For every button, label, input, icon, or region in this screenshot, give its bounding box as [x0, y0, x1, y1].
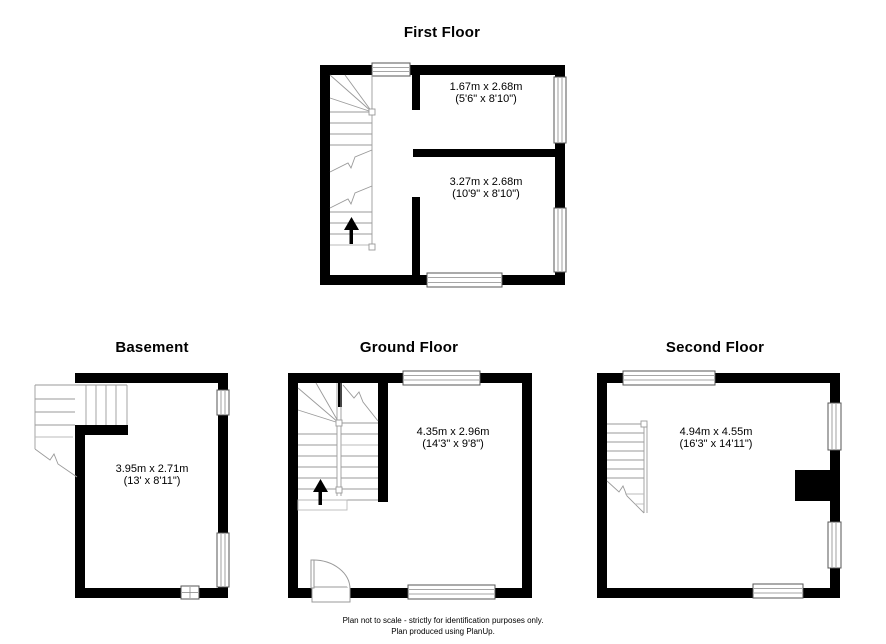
floor-title-ground-floor: Ground Floor: [360, 339, 458, 356]
footer-disclaimer: Plan not to scale - strictly for identif…: [0, 616, 886, 627]
window: [427, 273, 502, 287]
stairs-up-arrow-icon: [313, 479, 328, 505]
window: [217, 533, 229, 587]
stairs-up-arrow-icon: [344, 217, 359, 244]
room-dimensions-metric: 4.94m x 4.55m: [680, 427, 753, 439]
room-dimensions-metric: 1.67m x 2.68m: [450, 82, 523, 94]
entrance-door: [311, 560, 350, 602]
staircase: [607, 421, 647, 513]
window: [828, 522, 841, 568]
window: [403, 371, 480, 385]
room-dimensions-imperial: (10'9" x 8'10"): [450, 189, 523, 201]
window: [554, 208, 566, 272]
window: [372, 63, 410, 76]
floor-title-basement: Basement: [115, 339, 188, 356]
room-label: 4.94m x 4.55m (16'3" x 14'11"): [680, 427, 753, 450]
door-leaf: [311, 560, 314, 588]
window: [623, 371, 715, 385]
window: [828, 403, 841, 450]
staircase: [330, 75, 375, 250]
floor-title-first-floor: First Floor: [404, 24, 480, 41]
floorplan-page: First Floor: [0, 0, 886, 644]
footer-credit: Plan produced using PlanUp.: [0, 627, 886, 638]
floorplan-first-floor: [315, 60, 570, 290]
room-label: 3.95m x 2.71m (13' x 8'11"): [116, 464, 189, 487]
room-dimensions-imperial: (16'3" x 14'11"): [680, 439, 753, 451]
window: [181, 586, 199, 599]
window: [408, 585, 495, 599]
second-floor-walls: [597, 373, 840, 598]
door-swing-arc: [313, 560, 350, 589]
room-label: 3.27m x 2.68m (10'9" x 8'10"): [450, 177, 523, 200]
room-dimensions-metric: 3.95m x 2.71m: [116, 464, 189, 476]
room-dimensions-metric: 3.27m x 2.68m: [450, 177, 523, 189]
ground-floor-windows: [403, 371, 495, 599]
floorplan-second-floor: [595, 368, 850, 606]
room-dimensions-imperial: (13' x 8'11"): [116, 476, 189, 488]
room-label: 1.67m x 2.68m (5'6" x 8'10"): [450, 82, 523, 105]
room-label: 4.35m x 2.96m (14'3" x 9'8"): [417, 427, 490, 450]
chimney-breast: [795, 470, 830, 501]
window: [753, 584, 803, 598]
window: [217, 390, 229, 415]
floorplan-ground-floor: [285, 368, 537, 606]
room-dimensions-metric: 4.35m x 2.96m: [417, 427, 490, 439]
room-dimensions-imperial: (5'6" x 8'10"): [450, 94, 523, 106]
room-dimensions-imperial: (14'3" x 9'8"): [417, 439, 490, 451]
window: [554, 77, 566, 143]
floor-title-second-floor: Second Floor: [666, 339, 764, 356]
